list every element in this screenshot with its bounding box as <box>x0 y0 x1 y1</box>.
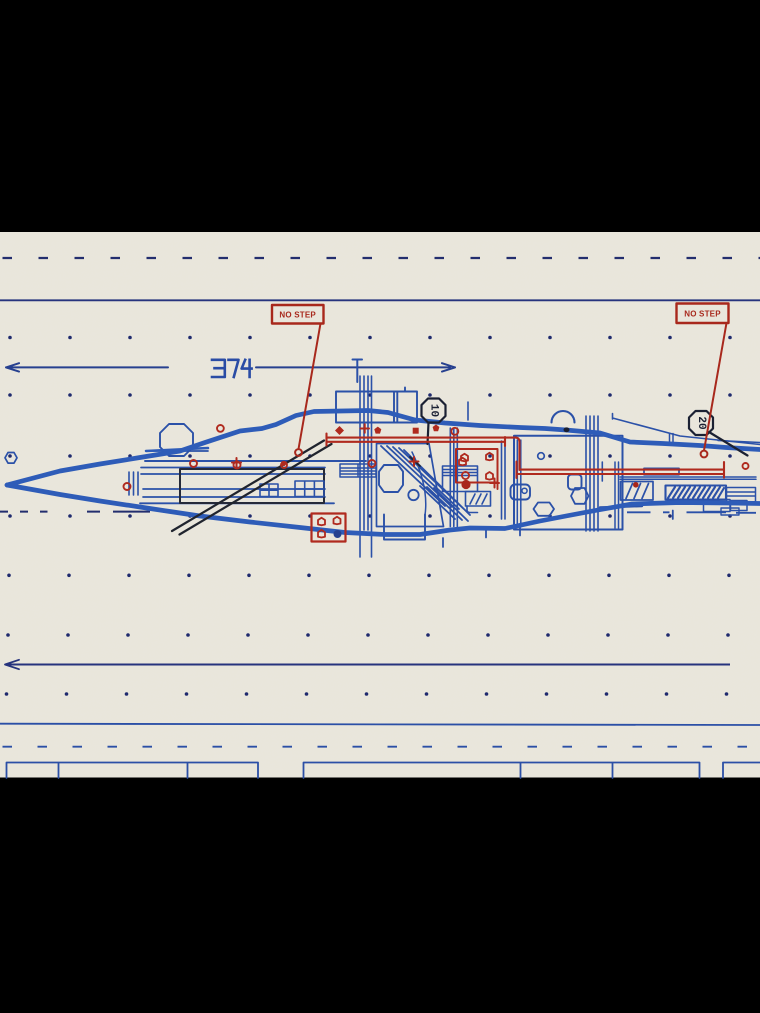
svg-text:20: 20 <box>695 416 707 429</box>
svg-text:NO STEP: NO STEP <box>684 310 721 319</box>
svg-text:NO STEP: NO STEP <box>279 311 316 320</box>
svg-text:10: 10 <box>428 404 440 417</box>
